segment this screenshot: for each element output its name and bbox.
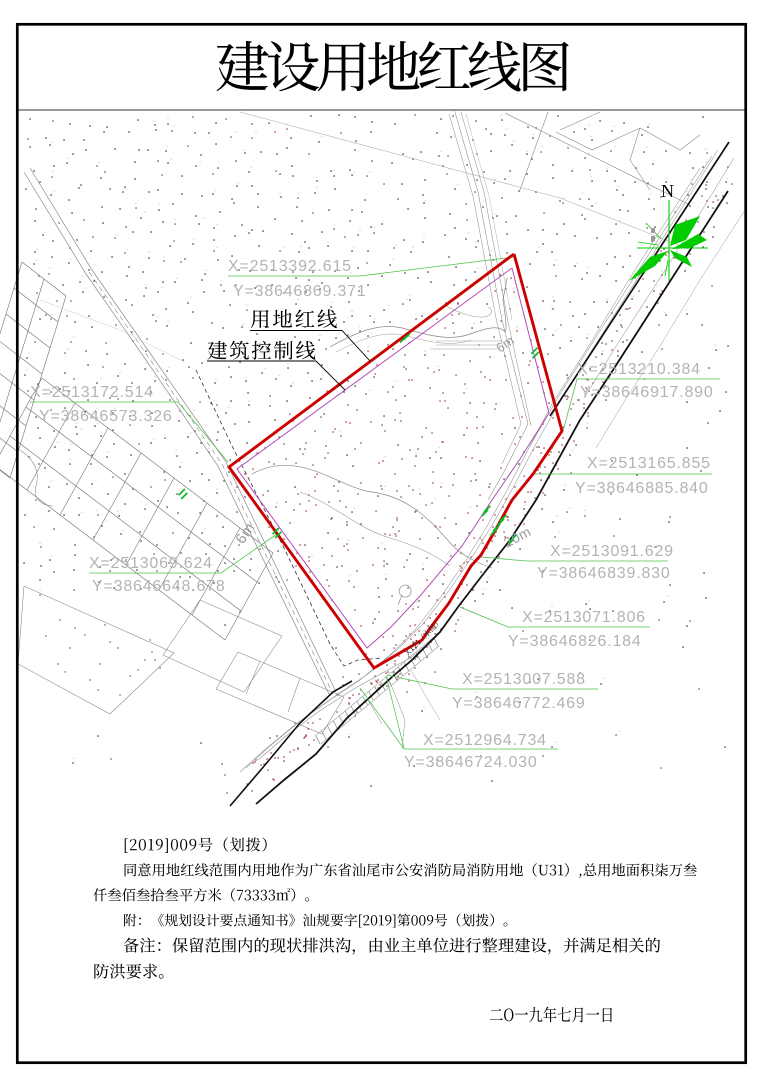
svg-text:Y=38646885.840: Y=38646885.840: [575, 480, 709, 497]
svg-text:Y=38646826.184: Y=38646826.184: [508, 633, 642, 650]
svg-text:N: N: [661, 181, 674, 201]
svg-text:X=2513392.615: X=2513392.615: [228, 258, 352, 275]
svg-text:Y=38646724.030: Y=38646724.030: [404, 754, 538, 771]
svg-text:Y=38646573.326: Y=38646573.326: [39, 408, 173, 425]
svg-text:Y=38646648.678: Y=38646648.678: [92, 578, 226, 595]
svg-text:X=2513165.855: X=2513165.855: [587, 455, 711, 472]
svg-text:X=2513069.624: X=2513069.624: [89, 555, 213, 572]
svg-text:Y=38646839.830: Y=38646839.830: [537, 565, 671, 582]
svg-text:Y=38646869.371: Y=38646869.371: [233, 283, 367, 300]
svg-text:X=2513071.806: X=2513071.806: [522, 609, 646, 626]
svg-text:X=2513007.588: X=2513007.588: [462, 671, 586, 688]
svg-text:X=2513172.514: X=2513172.514: [30, 384, 154, 401]
svg-text:X=2513091.629: X=2513091.629: [550, 543, 674, 560]
svg-text:Y=38646772.469: Y=38646772.469: [452, 695, 586, 712]
svg-text:Y=38646917.890: Y=38646917.890: [580, 384, 714, 401]
svg-text:X=2512964.734: X=2512964.734: [423, 732, 547, 749]
svg-text:X=2513210.384: X=2513210.384: [577, 361, 701, 378]
